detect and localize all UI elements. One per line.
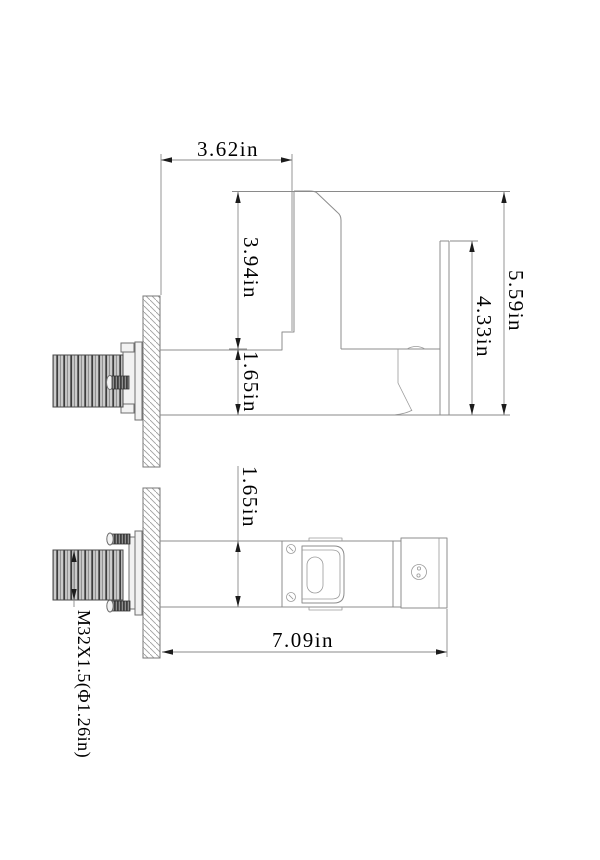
faucet-body-outline — [160, 191, 440, 350]
thread-spec-label: M32X1.5(Φ1.26in) — [73, 610, 94, 758]
arrowhead — [235, 541, 240, 552]
plan-dimensions: 1.65in 7.09in M32X1.5(Φ1.26in) — [71, 466, 447, 758]
plan-flange-body — [129, 537, 135, 609]
plan-screw-thread-top — [112, 534, 130, 544]
valve-lever-detail — [394, 349, 412, 415]
arrowhead — [469, 404, 474, 415]
plan-screw-head-bottom — [107, 600, 113, 612]
faucet-dimension-drawing: 3.62in 3.94in 1.65in 4.33in 5.59in — [0, 0, 600, 860]
arrowhead — [436, 649, 447, 654]
plan-threaded-shank — [53, 550, 123, 600]
plan-end-cap — [401, 538, 447, 608]
plan-screw-head-top — [107, 533, 113, 545]
plan-bracket-inner — [302, 550, 340, 599]
arrowhead — [469, 241, 474, 252]
plan-body-outline — [160, 541, 401, 607]
plan-end-port-hole — [417, 567, 420, 570]
plan-wall-plate — [143, 488, 160, 658]
elevation-view — [53, 191, 449, 467]
arrowhead — [501, 192, 506, 203]
dim-spout-height-label: 3.94in — [239, 237, 263, 299]
arrowhead — [161, 157, 172, 162]
elevation-mount-screw-top — [121, 343, 134, 352]
plan-end-port-hole — [417, 574, 420, 577]
arrowhead — [281, 157, 292, 162]
plan-screw-thread-bottom — [112, 601, 130, 611]
dim-body-width-label: 1.65in — [238, 466, 262, 528]
elevation-stud-thread — [112, 376, 129, 389]
dim-top-width-label: 3.62in — [197, 137, 259, 161]
plan-flange-ring — [135, 531, 142, 615]
technical-drawing-page: 3.62in 3.94in 1.65in 4.33in 5.59in — [0, 0, 600, 860]
plan-bracket-screw-slot — [289, 547, 293, 551]
elevation-wall-plate — [143, 296, 160, 467]
dim-handle-height-label: 4.33in — [472, 296, 496, 358]
arrowhead — [235, 192, 240, 203]
arrowhead — [235, 596, 240, 607]
elevation-dimensions: 3.62in 3.94in 1.65in 4.33in 5.59in — [160, 137, 528, 415]
plan-bracket-screw-slot — [289, 595, 293, 599]
arrowhead — [162, 649, 173, 654]
arrowhead — [501, 404, 506, 415]
plan-bracket-slot — [307, 557, 323, 593]
arrowhead — [235, 338, 240, 349]
dim-overall-height-label: 5.59in — [504, 270, 528, 332]
elevation-flange-ring — [135, 342, 142, 420]
handle-column — [440, 241, 449, 415]
dim-base-height-label: 1.65in — [239, 351, 263, 413]
dim-overall-length-label: 7.09in — [272, 628, 334, 652]
